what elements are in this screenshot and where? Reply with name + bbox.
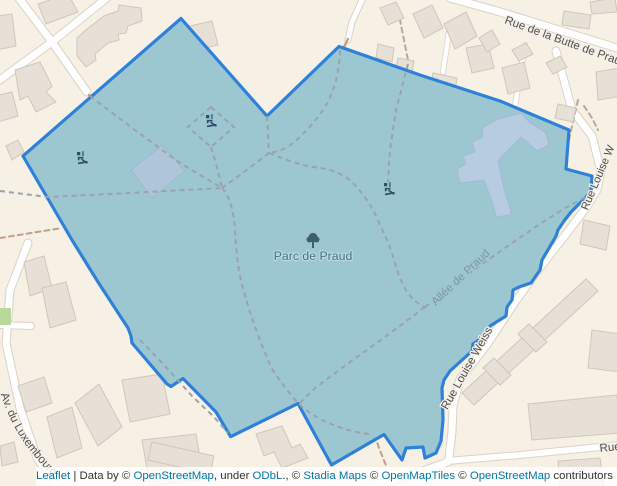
svg-text:Parc de Praud: Parc de Praud [274,249,353,263]
